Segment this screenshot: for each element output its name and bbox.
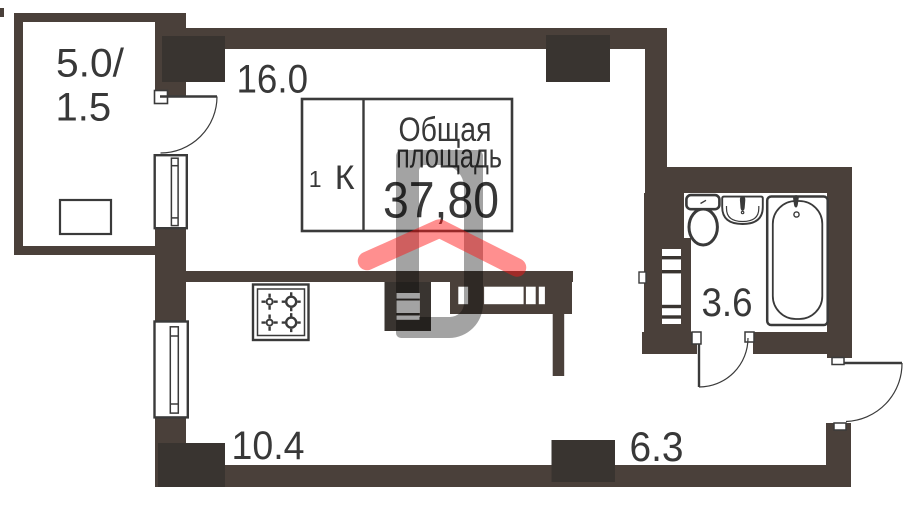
svg-text:16.0: 16.0 (237, 57, 309, 101)
svg-text:6.3: 6.3 (630, 423, 684, 470)
svg-text:1.5: 1.5 (56, 86, 112, 130)
svg-text:3.6: 3.6 (702, 281, 753, 325)
svg-text:1: 1 (309, 166, 322, 192)
svg-text:10.4: 10.4 (232, 424, 305, 468)
svg-text:5.0/: 5.0/ (56, 42, 125, 86)
svg-text:К: К (335, 159, 355, 197)
